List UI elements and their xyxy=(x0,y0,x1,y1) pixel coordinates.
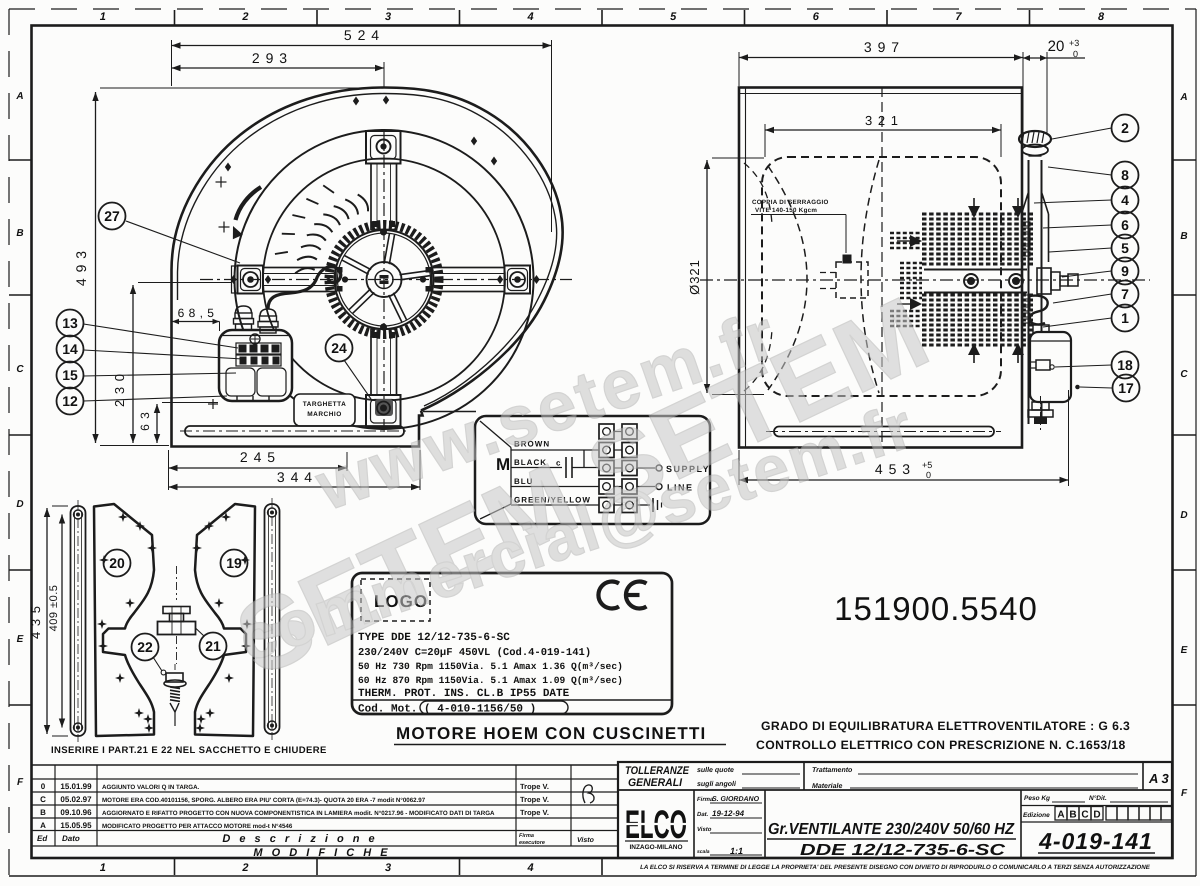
svg-text:6 3: 6 3 xyxy=(138,411,152,431)
svg-text:1:1: 1:1 xyxy=(730,846,743,856)
svg-text:Gr.VENTILANTE 230/240V 50/60 H: Gr.VENTILANTE 230/240V 50/60 HZ xyxy=(768,821,1015,838)
svg-text:D: D xyxy=(1093,810,1100,821)
svg-text:60 Hz 870 Rpm 1150Via. 5.1: 60 Hz 870 Rpm 1150Via. 5.1 Amax 1.09 Q(m… xyxy=(358,675,623,686)
svg-text:Visto: Visto xyxy=(577,836,595,844)
svg-text:5: 5 xyxy=(670,11,677,23)
svg-text:19-12-94: 19-12-94 xyxy=(712,809,745,818)
svg-text:3 2 1: 3 2 1 xyxy=(865,113,899,128)
svg-text:Trope V.: Trope V. xyxy=(520,795,549,804)
svg-text:4 3 5: 4 3 5 xyxy=(28,605,43,639)
svg-text:E: E xyxy=(17,634,24,645)
svg-text:18: 18 xyxy=(1117,357,1133,373)
svg-text:8: 8 xyxy=(1121,167,1129,183)
svg-text:17: 17 xyxy=(1118,380,1134,396)
svg-text:13: 13 xyxy=(62,315,78,331)
svg-text:15: 15 xyxy=(62,367,78,383)
svg-text:TARGHETTA: TARGHETTA xyxy=(303,401,347,408)
svg-text:COPPIA DI SERRAGGIO: COPPIA DI SERRAGGIO xyxy=(752,199,829,206)
svg-text:20: 20 xyxy=(1048,38,1065,55)
svg-text:CONTROLLO ELETTRICO CON PRESCR: CONTROLLO ELETTRICO CON PRESCRIZIONE N. … xyxy=(756,738,1126,752)
svg-text:1: 1 xyxy=(100,862,106,874)
svg-text:14: 14 xyxy=(62,341,78,357)
svg-text:4-019-141: 4-019-141 xyxy=(1038,828,1153,854)
svg-text:C: C xyxy=(16,364,24,375)
svg-text:D: D xyxy=(1180,510,1187,521)
svg-text:A: A xyxy=(1057,810,1064,821)
svg-text:VITE 140-150 Kgcm: VITE 140-150 Kgcm xyxy=(755,207,817,214)
svg-text:15.01.99: 15.01.99 xyxy=(60,782,92,791)
svg-text:19: 19 xyxy=(226,555,242,571)
svg-text:27: 27 xyxy=(104,208,120,224)
svg-text:2: 2 xyxy=(241,11,248,23)
svg-text:1: 1 xyxy=(1121,310,1129,326)
svg-text:0: 0 xyxy=(41,782,46,791)
svg-text:3 9 7: 3 9 7 xyxy=(864,39,900,55)
svg-text:1: 1 xyxy=(100,11,106,23)
svg-text:B: B xyxy=(40,808,46,817)
svg-text:sugli angoli: sugli angoli xyxy=(697,780,737,788)
svg-text:05.02.97: 05.02.97 xyxy=(60,795,92,804)
svg-text:0: 0 xyxy=(1073,49,1078,59)
svg-text:C: C xyxy=(40,795,46,804)
svg-text:6: 6 xyxy=(813,11,820,23)
svg-text:LA ELCO SI RISERVA A TERMINE D: LA ELCO SI RISERVA A TERMINE DI LEGGE LA… xyxy=(640,864,1151,871)
svg-text:230/240V C=20µF 450VL (Co: 230/240V C=20µF 450VL (Cod.4-019-141) xyxy=(358,647,591,659)
svg-text:Trattamento: Trattamento xyxy=(812,767,853,774)
svg-text:6: 6 xyxy=(1121,217,1129,233)
svg-text:7: 7 xyxy=(1121,286,1129,302)
svg-text:sulle quote: sulle quote xyxy=(697,766,734,774)
svg-text:Firma: Firma xyxy=(519,833,534,839)
svg-text:5: 5 xyxy=(1121,240,1129,256)
svg-text:20: 20 xyxy=(109,555,125,571)
svg-text:S. GIORDANO: S. GIORDANO xyxy=(712,796,760,803)
svg-text:50 Hz 730 Rpm 1150Via. 5.1: 50 Hz 730 Rpm 1150Via. 5.1 Amax 1.36 Q(m… xyxy=(358,661,623,672)
svg-text:9: 9 xyxy=(1121,263,1129,279)
svg-text:M O D I F I C H E: M O D I F I C H E xyxy=(253,847,390,859)
svg-text:3 4 4: 3 4 4 xyxy=(277,469,313,485)
svg-text:Trope V.: Trope V. xyxy=(520,808,549,817)
svg-text:MARCHIO: MARCHIO xyxy=(307,411,342,418)
svg-text:THERM. PROT. INS. CL.B I: THERM. PROT. INS. CL.B IP55 DATE xyxy=(358,688,570,700)
svg-text:22: 22 xyxy=(137,639,153,655)
svg-text:12: 12 xyxy=(62,393,78,409)
svg-text:Dat.: Dat. xyxy=(697,811,709,818)
svg-text:4 9 3: 4 9 3 xyxy=(73,250,89,286)
svg-text:2: 2 xyxy=(241,862,248,874)
svg-text:A: A xyxy=(1179,92,1187,103)
svg-text:151900.5540: 151900.5540 xyxy=(834,590,1038,627)
svg-text:B: B xyxy=(1069,810,1076,821)
svg-text:E: E xyxy=(1181,645,1188,656)
svg-text:AGGIUNTO VALORI Q IN TARGA.: AGGIUNTO VALORI Q IN TARGA. xyxy=(102,784,200,791)
svg-text:scala: scala xyxy=(697,849,710,855)
svg-text:GRADO DI EQUILIBRATURA ELETTRO: GRADO DI EQUILIBRATURA ELETTROVENTILATOR… xyxy=(761,719,1130,733)
svg-text:15.05.95: 15.05.95 xyxy=(60,821,92,830)
svg-text:INSERIRE I PART.21 E 22 NEL SA: INSERIRE I PART.21 E 22 NEL SACCHETTO E … xyxy=(51,745,327,756)
svg-text:7: 7 xyxy=(955,11,962,23)
svg-text:Visto: Visto xyxy=(697,826,712,833)
svg-text:4: 4 xyxy=(1121,192,1129,208)
svg-text:0: 0 xyxy=(926,470,931,480)
svg-text:Ed: Ed xyxy=(37,834,48,843)
svg-text:N°Dit.: N°Dit. xyxy=(1089,795,1107,802)
svg-text:AGGIORNATO E RIFATTO PROGETTO: AGGIORNATO E RIFATTO PROGETTO CON NUOVA … xyxy=(102,810,495,817)
svg-text:B: B xyxy=(16,228,23,239)
svg-text:F: F xyxy=(1181,788,1188,799)
svg-text:Edizione: Edizione xyxy=(1023,812,1050,819)
svg-text:24: 24 xyxy=(331,340,347,356)
svg-text:D: D xyxy=(16,499,23,510)
svg-text:INZAGO-MILANO: INZAGO-MILANO xyxy=(629,844,682,851)
svg-text:+3: +3 xyxy=(1069,38,1079,48)
svg-text:D e s c r i z i o n e: D e s c r i z i o n e xyxy=(222,833,377,845)
svg-text:TOLLERANZE: TOLLERANZE xyxy=(625,765,690,777)
svg-text:2 3 0: 2 3 0 xyxy=(112,373,127,407)
svg-text:09.10.96: 09.10.96 xyxy=(60,808,92,817)
svg-text:Dato: Dato xyxy=(62,834,80,843)
svg-text:21: 21 xyxy=(205,638,221,654)
svg-text:MOTORE HOEM CON CUSCINETTI: MOTORE HOEM CON CUSCINETTI xyxy=(396,724,706,743)
svg-text:MODIFICATO PROGETTO PER ATTACC: MODIFICATO PROGETTO PER ATTACCO MOTORE m… xyxy=(102,823,293,830)
svg-text:GENERALI: GENERALI xyxy=(628,777,683,789)
svg-text:2 9 3: 2 9 3 xyxy=(252,50,288,66)
svg-text:6 8 , 5: 6 8 , 5 xyxy=(178,306,215,320)
svg-text:409 ±0.5: 409 ±0.5 xyxy=(48,585,60,632)
svg-text:Ø321: Ø321 xyxy=(687,259,702,295)
svg-text:5 2 4: 5 2 4 xyxy=(344,27,380,43)
svg-text:A: A xyxy=(15,91,23,102)
svg-text:MOTORE ERA COD.40101156, SPORG: MOTORE ERA COD.40101156, SPORG. ALBERO E… xyxy=(102,797,426,804)
svg-text:+5: +5 xyxy=(922,460,932,470)
svg-text:4: 4 xyxy=(527,11,534,23)
svg-text:A 3: A 3 xyxy=(1148,771,1170,786)
svg-text:4: 4 xyxy=(527,862,534,874)
svg-text:F: F xyxy=(17,777,24,788)
svg-text:A: A xyxy=(40,821,46,830)
svg-text:2: 2 xyxy=(1121,120,1129,136)
svg-text:3: 3 xyxy=(385,11,391,23)
svg-text:8: 8 xyxy=(1098,11,1105,23)
svg-text:C: C xyxy=(1180,369,1188,380)
svg-text:C: C xyxy=(1081,810,1088,821)
svg-text:2 4 5: 2 4 5 xyxy=(240,449,276,465)
svg-text:Materiale: Materiale xyxy=(812,782,842,790)
svg-text:DDE 12/12-735-6-SC: DDE 12/12-735-6-SC xyxy=(800,842,1006,859)
svg-text:Peso Kg: Peso Kg xyxy=(1024,795,1050,802)
svg-text:3: 3 xyxy=(385,862,391,874)
svg-text:esecutore: esecutore xyxy=(519,840,545,846)
svg-text:Trope V.: Trope V. xyxy=(520,782,549,791)
svg-text:B: B xyxy=(1180,231,1187,242)
